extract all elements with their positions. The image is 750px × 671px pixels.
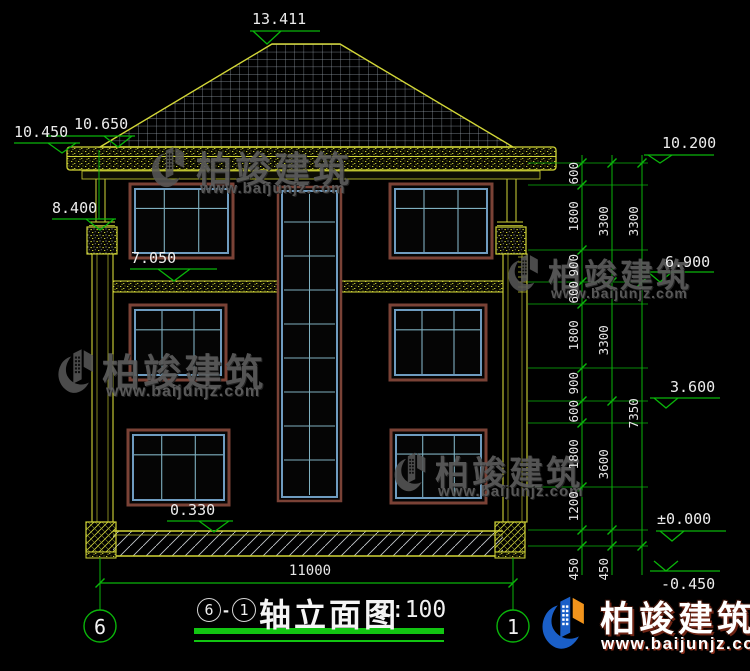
window-3f-right [390,184,492,258]
elevation-label-capital: 8.400 [52,201,97,216]
elevation-label-band: 7.050 [131,251,176,266]
elevation-label-sill: 0.330 [170,503,215,518]
watermark-url: www.baijunjz.com [438,483,583,500]
drawing-scale: 1:100 [377,597,446,623]
dim-label: 1200 [568,474,581,538]
axis-number-left: 6 [84,617,116,637]
dim-label: 3600 [598,432,611,496]
dim-label: 3300 [598,189,611,253]
watermark-icon [148,140,192,190]
elevation-label-right-ground: ±0.000 [657,512,711,527]
marker-right-ground [656,531,726,541]
dim-label-total-width: 11000 [278,564,342,578]
brand-logo-url: www.baijunjz.com [601,634,750,654]
elevation-label-ridge: 13.411 [252,12,306,27]
title-axis-to-number: 1 [239,601,248,619]
stair-window [278,187,341,501]
dim-label: 7350 [628,381,641,445]
watermark-icon [505,248,545,294]
watermark-url: www.baijunjz.com [200,180,345,197]
window-2f-right [390,305,486,380]
dim-label: 3300 [598,308,611,372]
elevation-label-right-f3: 6.900 [665,255,710,270]
ground-slab [113,531,503,556]
window-1f-left [128,430,229,505]
elevation-label-right-f2: 3.600 [670,380,715,395]
title-axis-from: 6 [197,598,221,622]
elevation-label-right-base: -0.450 [661,577,715,592]
marker-right-eave [644,155,714,163]
brand-logo-icon [542,597,583,649]
axis-number-right: 1 [497,617,529,637]
title-separator: - [223,600,229,621]
elevation-label-eave: 10.450 [14,125,68,140]
marker-right-base [650,561,720,571]
watermark-icon [391,446,433,494]
watermark-icon [54,342,102,396]
cad-elevation-sheet: 柏竣建筑 www.baijunjz.com 柏竣建筑 www.baijunjz.… [0,0,750,671]
watermark-url: www.baijunjz.com [106,383,260,401]
title-axis-to: 1 [232,598,256,622]
marker-right-f2 [650,398,720,408]
roof-tiles [100,44,513,147]
dim-label: 450 [568,537,581,601]
elevation-label-fascia: 10.650 [74,117,128,132]
elevation-markers-right [644,155,726,571]
roof [100,44,513,147]
left-column-capital [87,227,117,254]
title-axis-from-number: 6 [204,601,213,619]
right-column-base [495,522,525,552]
right-column [495,179,527,558]
marker-ridge [250,31,320,44]
elevation-drawing [0,0,750,671]
left-column-base [86,522,116,552]
marker-band [130,269,217,281]
dim-label: 3300 [628,189,641,253]
elevation-label-right-eave: 10.200 [662,136,716,151]
